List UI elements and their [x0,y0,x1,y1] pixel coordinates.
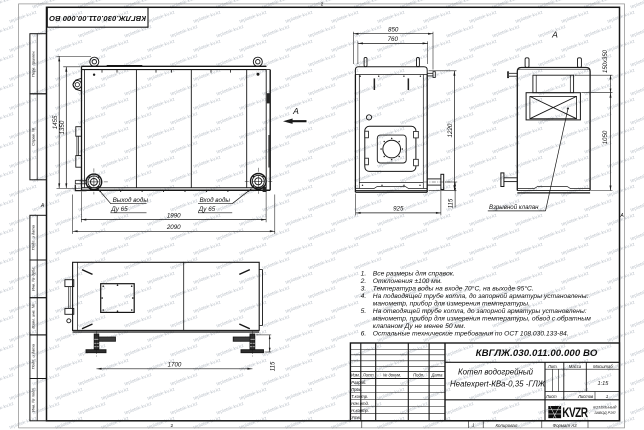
svg-text:1050: 1050 [602,130,609,144]
svg-text:Взам. инв. №: Взам. инв. № [31,303,36,328]
svg-text:760: 760 [388,36,399,43]
svg-text:2: 2 [321,2,324,8]
svg-text:Подп. и дата: Подп. и дата [31,224,36,250]
svg-text:Подп.: Подп. [413,373,424,378]
svg-text:Инв. № дубл.: Инв. № дубл. [31,267,36,292]
svg-text:115: 115 [270,361,276,371]
svg-text:Инв. № подл.: Инв. № подл. [31,387,36,412]
svg-text:Отклонения ±100 мм.: Отклонения ±100 мм. [373,278,443,285]
svg-text:Утв.: Утв. [351,415,361,420]
svg-text:Н.контр.: Н.контр. [351,408,369,413]
svg-text:Лист: Лист [362,373,374,378]
svg-text:На подводящей трубе котла, до: На подводящей трубе котла, до запорной а… [373,292,589,300]
svg-text:925: 925 [393,206,404,213]
svg-text:1220: 1220 [447,123,454,137]
svg-text:Температура воды на входе 70°С: Температура воды на входе 70°С, на выход… [373,284,534,292]
svg-text:150х350: 150х350 [603,49,609,73]
svg-text:А: А [292,106,299,116]
svg-text:Heatexpert-КВа-0,35 -ГЛЖ: Heatexpert-КВа-0,35 -ГЛЖ [450,380,546,389]
svg-text:манометр, прибор для измерения: манометр, прибор для измерения температу… [373,299,530,307]
svg-text:Ду 65: Ду 65 [198,206,216,213]
svg-text:Лист: Лист [545,394,557,399]
svg-text:Нач.отд.: Нач.отд. [351,401,369,406]
svg-text:Масса: Масса [569,364,582,369]
svg-text:А: А [40,203,45,209]
svg-text:1700: 1700 [168,362,182,369]
svg-text:3.: 3. [361,285,367,292]
svg-text:1.: 1. [361,270,367,277]
svg-text:1350: 1350 [59,120,66,134]
svg-text:Масштаб: Масштаб [593,364,613,369]
svg-text:850: 850 [388,27,399,34]
svg-text:Остальные технические требован: Остальные технические требования по ОСТ … [373,329,569,337]
svg-text:1990: 1990 [167,212,181,219]
svg-text:Листов: Листов [577,394,594,399]
svg-text:КОТЕЛЬНЫЙ: КОТЕЛЬНЫЙ [593,406,617,410]
svg-text:1455: 1455 [52,115,59,129]
svg-text:А: А [619,213,624,219]
svg-text:Копировал: Копировал [495,423,517,428]
svg-text:№ докум.: № докум. [383,373,401,378]
svg-text:На отводящей трубе котла, до з: На отводящей трубе котла, до запорной ар… [373,307,587,315]
svg-text:5.: 5. [361,308,367,315]
svg-text:Лит.: Лит. [547,364,558,369]
svg-text:Пров.: Пров. [351,387,362,392]
svg-text:Справ. №: Справ. № [31,127,36,146]
svg-text:Подп. и дата: Подп. и дата [31,343,36,369]
svg-text:ЗАВОД РЭП: ЗАВОД РЭП [594,411,615,415]
svg-text:А: А [551,30,558,40]
svg-text:6.: 6. [361,330,367,337]
svg-text:КВГЛЖ.030.011.00.000 ВО: КВГЛЖ.030.011.00.000 ВО [49,14,146,23]
svg-text:115: 115 [449,198,455,208]
svg-text:Формат А3: Формат А3 [553,423,578,428]
svg-text:Взрывной клапан: Взрывной клапан [489,204,539,211]
svg-text:КВГЛЖ.030.011.00.000 ВО: КВГЛЖ.030.011.00.000 ВО [476,348,598,359]
svg-text:2: 2 [170,423,173,429]
svg-text:Перв. примен.: Перв. примен. [31,50,36,77]
svg-text:4.: 4. [361,293,367,300]
svg-text:Изм.: Изм. [351,373,360,378]
svg-text:Котел водогрейный: Котел водогрейный [458,368,534,377]
svg-text:Вход воды: Вход воды [200,196,231,204]
svg-text:Дата: Дата [430,373,443,378]
svg-text:Выход воды: Выход воды [113,196,149,204]
svg-text:2090: 2090 [166,224,181,231]
svg-text:Разраб.: Разраб. [351,380,366,385]
svg-text:1:15: 1:15 [597,381,609,387]
svg-text:клапаном Ду не менее 50 мм.: клапаном Ду не менее 50 мм. [373,323,466,330]
svg-text:Ду 65: Ду 65 [110,206,128,213]
svg-text:манометр, прибор для измерения: манометр, прибор для измерения температу… [373,314,591,322]
svg-text:KVZR: KVZR [562,405,588,421]
svg-text:2.: 2. [360,278,367,285]
svg-text:Все размеры для справок.: Все размеры для справок. [373,269,455,277]
svg-text:Т.контр.: Т.контр. [351,394,368,399]
